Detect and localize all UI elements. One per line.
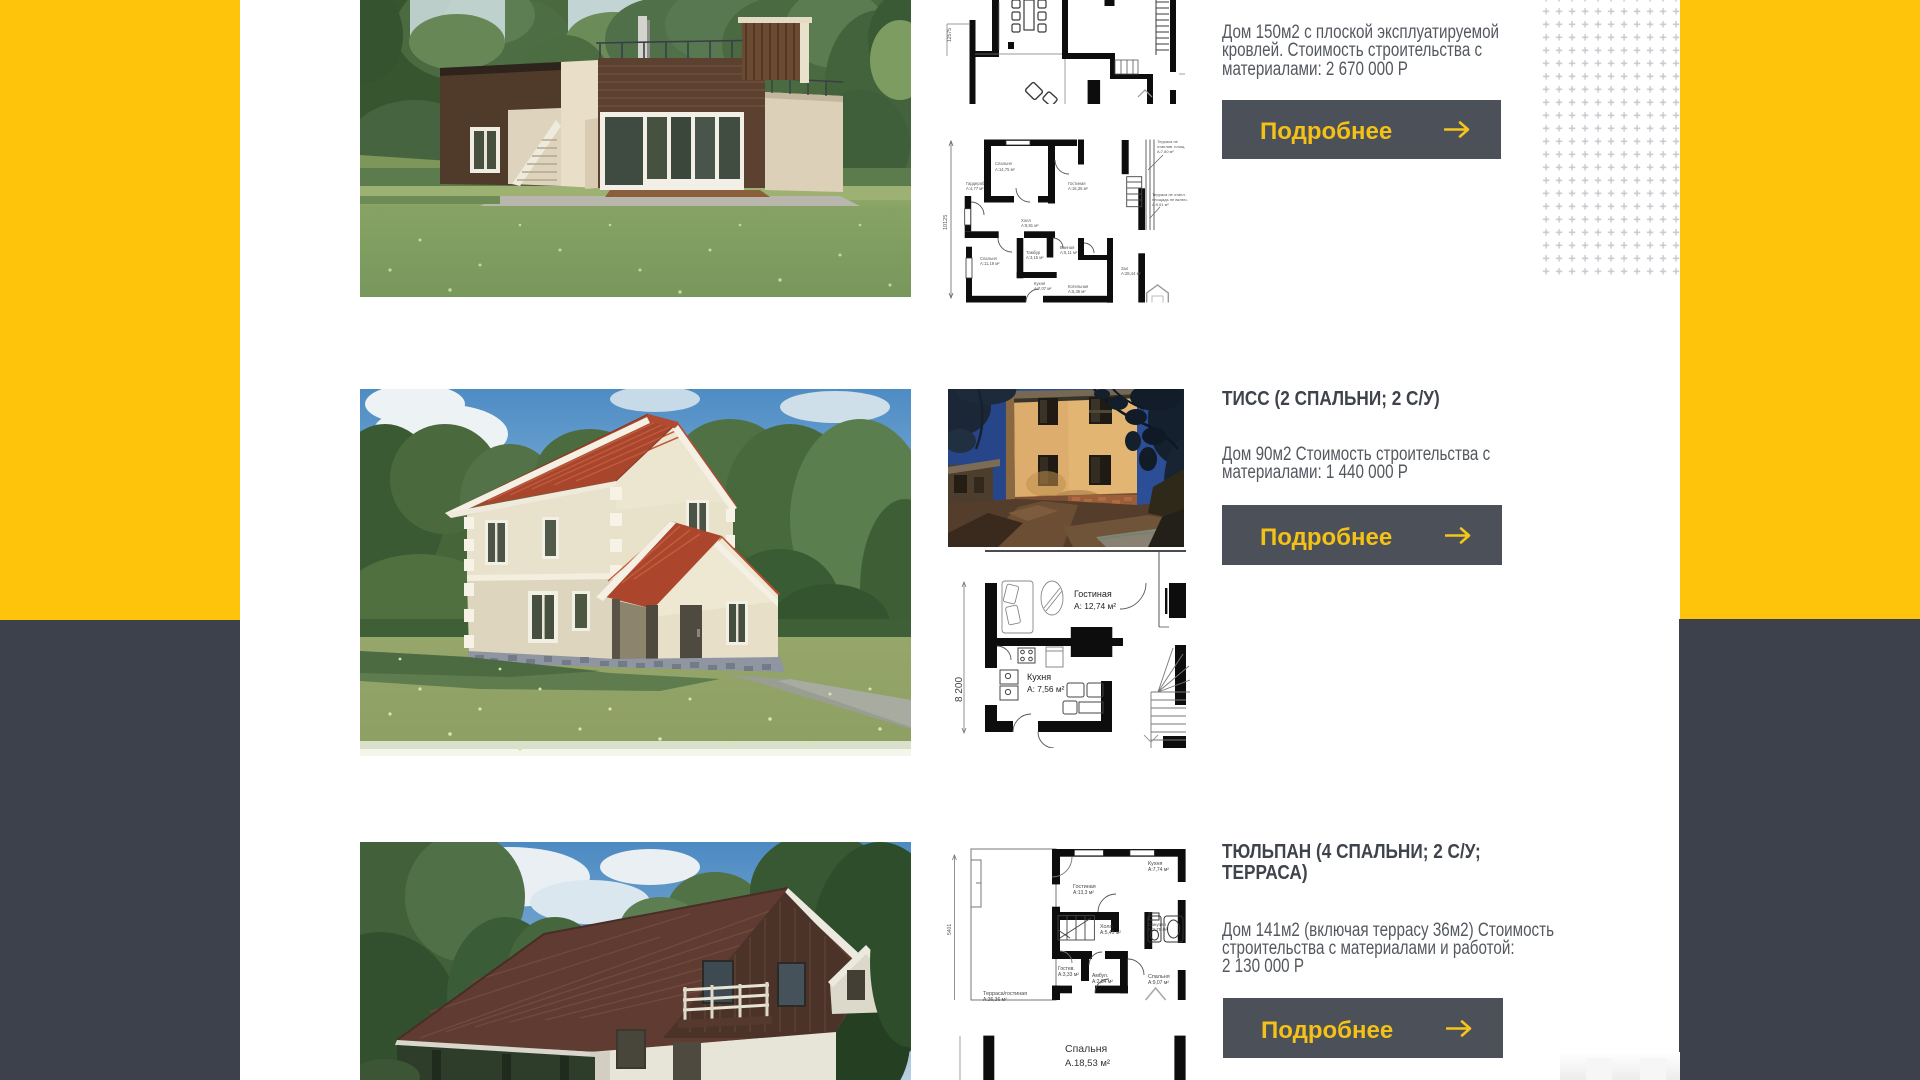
svg-text:А:7,80 м²: А:7,80 м² xyxy=(1157,149,1174,154)
svg-text:5401: 5401 xyxy=(947,924,953,935)
svg-text:А:7,07 м²: А:7,07 м² xyxy=(1034,286,1052,291)
svg-text:А:9,51 м²: А:9,51 м² xyxy=(1152,202,1169,207)
svg-text:Гостиная: Гостиная xyxy=(1074,589,1112,599)
svg-text:А:9,07 м²: А:9,07 м² xyxy=(1148,980,1169,986)
svg-text:10125: 10125 xyxy=(943,215,949,230)
svg-text:А:2,84 м²: А:2,84 м² xyxy=(1092,979,1113,985)
svg-text:Кухня: Кухня xyxy=(1027,672,1051,682)
svg-text:А:16,35 м²: А:16,35 м² xyxy=(1068,186,1088,191)
svg-text:Спальня: Спальня xyxy=(995,161,1012,166)
svg-text:А:2,75 м²: А:2,75 м² xyxy=(1148,927,1168,932)
svg-text:А:28,44 м²: А:28,44 м² xyxy=(1121,271,1141,276)
svg-text:А:4,77 м²: А:4,77 м² xyxy=(966,186,984,191)
svg-text:А:5,11 м²: А:5,11 м² xyxy=(1060,250,1078,255)
svg-text:А:3,15 м²: А:3,15 м² xyxy=(1026,255,1044,260)
svg-text:А:13,3 м²: А:13,3 м² xyxy=(1073,890,1094,896)
svg-text:А.18,53 м²: А.18,53 м² xyxy=(1065,1058,1110,1069)
svg-text:А:11,19 м²: А:11,19 м² xyxy=(980,261,1000,266)
svg-text:А:5,36 м²: А:5,36 м² xyxy=(1068,289,1086,294)
svg-text:А:14,75 м²: А:14,75 м² xyxy=(995,167,1015,172)
svg-text:Спальня: Спальня xyxy=(1065,1043,1107,1055)
svg-text:12575: 12575 xyxy=(947,28,953,42)
svg-text:А:9,81 м²: А:9,81 м² xyxy=(1021,223,1039,228)
svg-text:А:5,45 м²: А:5,45 м² xyxy=(1100,930,1121,936)
svg-text:А:3,33 м²: А:3,33 м² xyxy=(1058,972,1079,978)
svg-text:А:7,74 м²: А:7,74 м² xyxy=(1148,867,1169,873)
svg-text:А: 7,56 м²: А: 7,56 м² xyxy=(1027,684,1065,694)
svg-text:А: 12,74 м²: А: 12,74 м² xyxy=(1074,601,1116,611)
svg-text:8 200: 8 200 xyxy=(954,677,965,702)
svg-text:А:36,36 м²: А:36,36 м² xyxy=(983,997,1007,1003)
